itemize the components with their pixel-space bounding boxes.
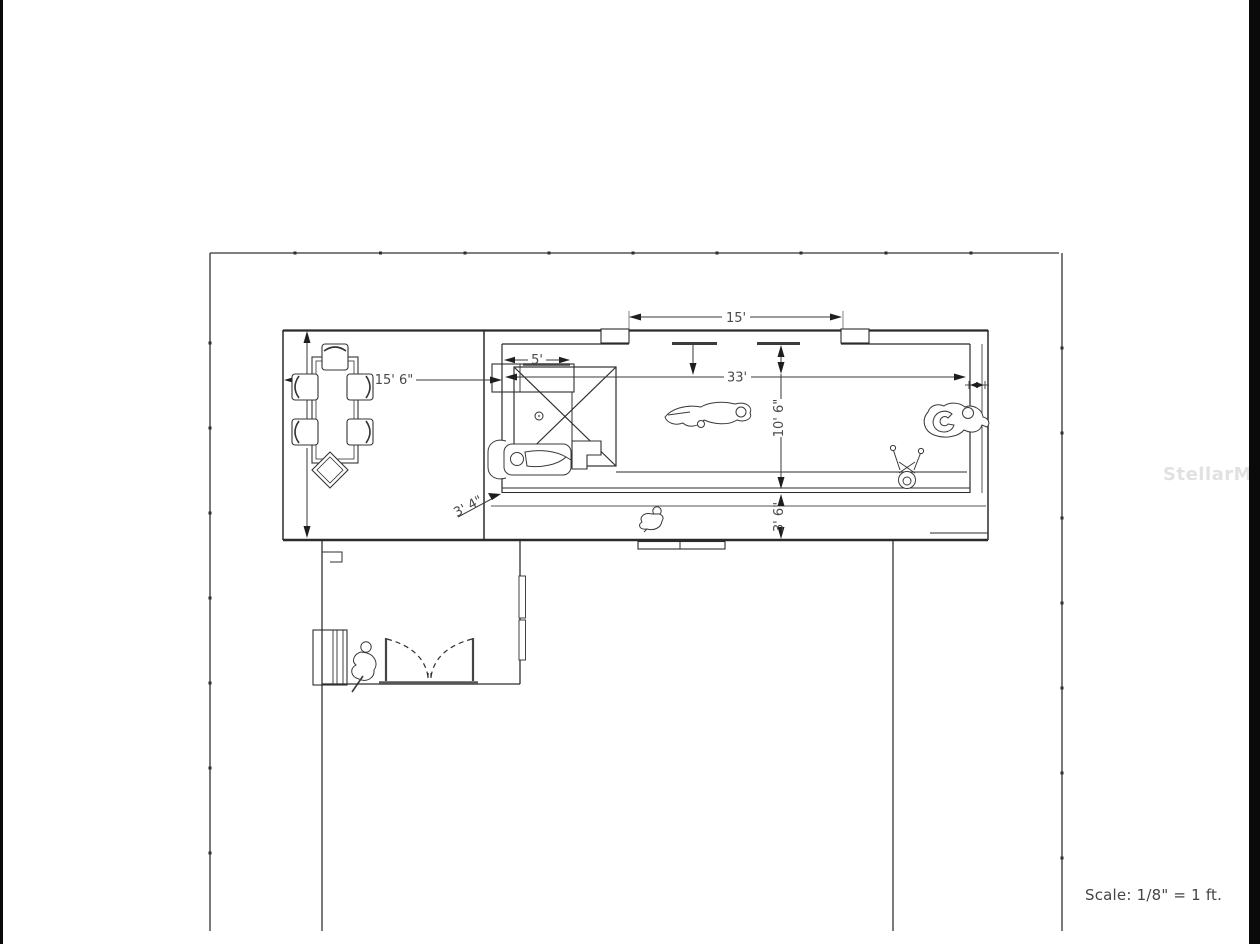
dim-rear-walkway: 3' 6"	[772, 502, 787, 532]
double-door	[379, 638, 478, 683]
scale-note: Scale: 1/8" = 1 ft.	[1085, 886, 1222, 904]
right-letterbox-bar	[1249, 0, 1260, 944]
dim-patio-width: 15' 6"	[375, 373, 414, 388]
walker-figure	[640, 507, 664, 532]
door-leader-arrow	[690, 345, 697, 375]
swimmer-figure	[665, 402, 751, 427]
storage-cabinet	[313, 630, 347, 685]
watermark-text: StellarMLS	[1163, 464, 1260, 485]
pool-float-person-figure	[924, 403, 989, 437]
lounger-person-figure	[488, 440, 571, 479]
dimension-annotations: 15' 15' 6" 33' 5' 15'	[284, 311, 989, 539]
ladder-person-figure	[890, 445, 923, 488]
dim-screen-opening: 15'	[726, 311, 746, 326]
dining-chair	[322, 344, 348, 370]
dim-corner-offset: 3' 4"	[451, 493, 485, 520]
boundary-survey-ticks	[209, 252, 1064, 860]
dim-lanai-length: 33'	[727, 371, 747, 386]
lanai-structure	[283, 329, 988, 549]
dining-chair	[292, 374, 318, 400]
floor-plan-page: 15' 15' 6" 33' 5' 15'	[0, 0, 1260, 944]
dim-pool-width: 10' 6"	[772, 399, 787, 438]
dining-chair	[347, 419, 373, 445]
dim-spa-width: 5'	[531, 353, 543, 368]
floor-plan-drawing: 15' 15' 6" 33' 5' 15'	[0, 0, 1260, 944]
dining-chair	[292, 419, 318, 445]
dining-chair	[347, 374, 373, 400]
garage-room	[313, 541, 526, 685]
dining-set	[292, 344, 373, 488]
left-letterbox-bar	[0, 0, 3, 944]
